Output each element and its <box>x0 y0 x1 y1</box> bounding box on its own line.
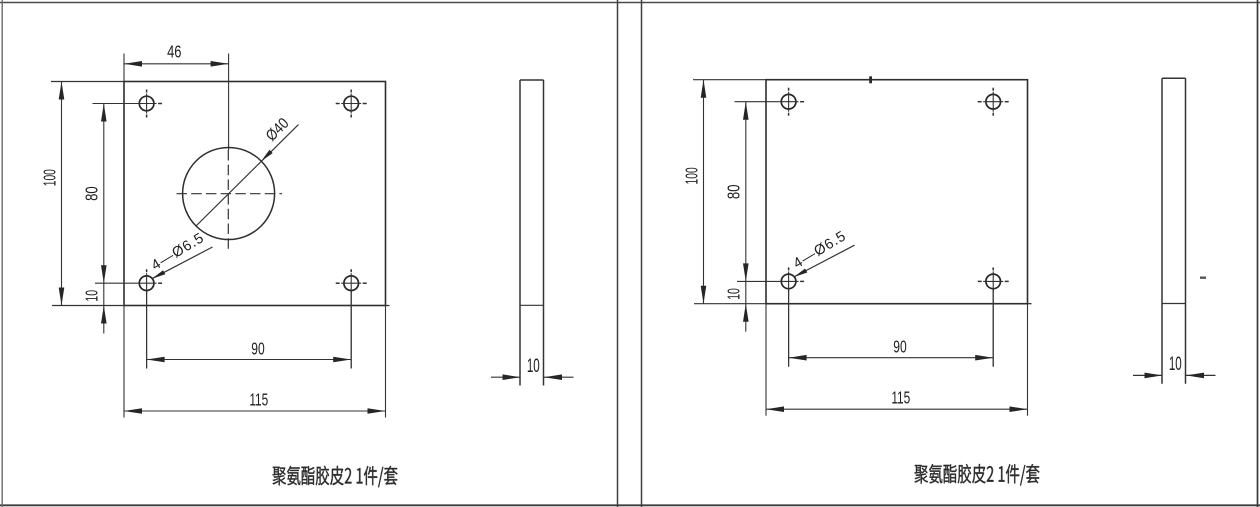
svg-text:10: 10 <box>725 288 745 300</box>
svg-text:115: 115 <box>249 390 268 410</box>
svg-text:100: 100 <box>41 169 61 186</box>
svg-text:10: 10 <box>1169 354 1182 375</box>
svg-text:10: 10 <box>527 356 540 377</box>
svg-text:80: 80 <box>725 184 744 199</box>
svg-text:100: 100 <box>683 167 703 184</box>
svg-text:10: 10 <box>83 290 103 302</box>
svg-text:115: 115 <box>891 388 910 408</box>
svg-text:46: 46 <box>167 43 182 63</box>
svg-text:90: 90 <box>251 339 264 359</box>
svg-text:80: 80 <box>83 186 102 201</box>
svg-text:90: 90 <box>893 337 906 357</box>
